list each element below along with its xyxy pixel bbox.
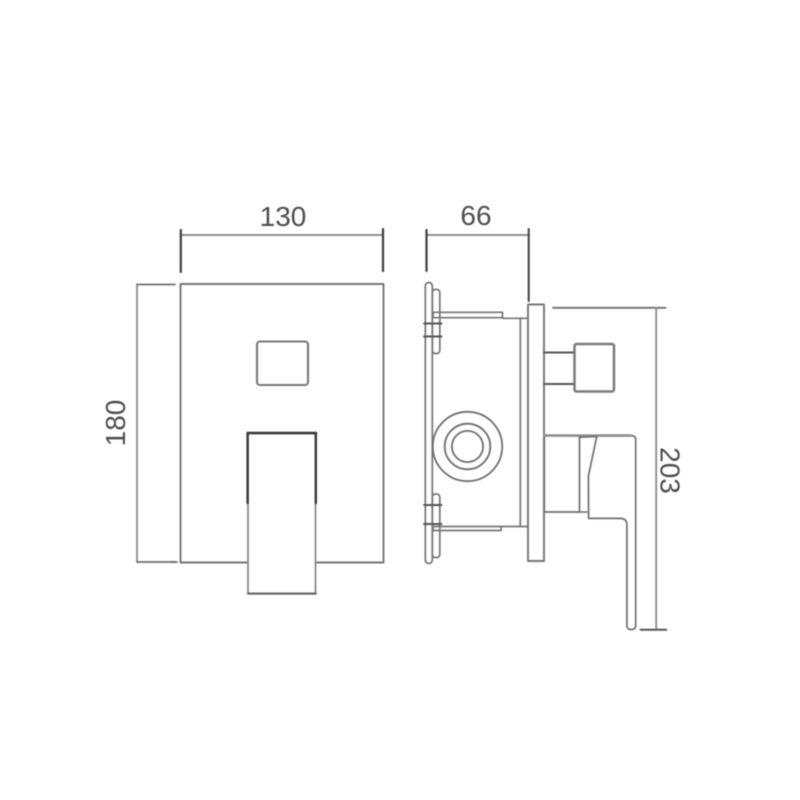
svg-text:203: 203	[655, 447, 686, 494]
svg-text:180: 180	[100, 400, 131, 447]
svg-text:130: 130	[260, 201, 307, 232]
svg-text:66: 66	[460, 200, 491, 231]
